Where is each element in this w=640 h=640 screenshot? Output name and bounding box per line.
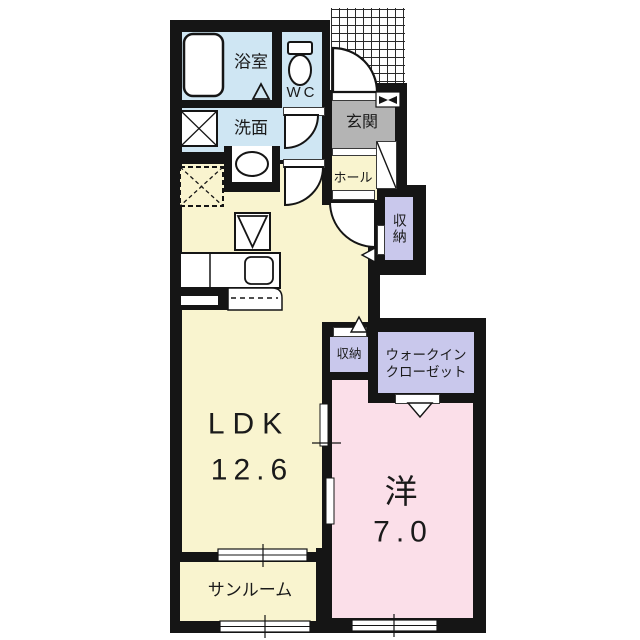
storage-opening-triangle-icon [351, 317, 367, 332]
vanity-sink-icon [236, 152, 268, 176]
bathtub-icon [184, 34, 223, 96]
shoe-cabinet-diagonal [377, 142, 396, 188]
toilet-tank-icon [288, 42, 312, 54]
label-entrance: 玄関 [346, 114, 378, 132]
wic-opening-triangle-icon [408, 403, 432, 417]
label-bathroom: 浴室 [234, 54, 268, 73]
label-hall: ホール [333, 171, 372, 185]
door-bowtie-icon [376, 92, 400, 107]
window-ldk-sunroom [218, 544, 307, 567]
label-wic-line2: クローゼット [386, 366, 467, 381]
window-sunroom-south [220, 615, 310, 638]
kitchen-counter-icon [180, 253, 280, 288]
sliding-door-ldk-western [312, 404, 341, 524]
label-wc: WC [287, 85, 318, 102]
label-washroom: 洗面 [234, 120, 268, 139]
refrigerator-space-icon [180, 167, 223, 206]
hall-door-triangle-icon [362, 248, 375, 262]
kitchen-bar-counter-icon [228, 288, 282, 310]
label-ldk-name: LDK [208, 408, 290, 441]
wc-door-arc [285, 115, 318, 148]
label-storage-upper: 収納 [391, 213, 406, 245]
label-sunroom: サンルーム [208, 582, 293, 601]
label-storage-lower: 収納 [336, 348, 361, 362]
washing-machine-pan-icon [181, 111, 217, 146]
toilet-bowl-icon [289, 55, 311, 85]
label-ldk-size: 12.6 [211, 454, 293, 487]
floor-plan: 浴室 WC 洗面 玄関 ホール 収納 収納 ウォークイン クローゼット LDK … [0, 0, 640, 640]
label-western-size: 7.0 [373, 516, 433, 549]
window-western-south [352, 614, 437, 637]
washroom-door-arc [285, 167, 323, 205]
fixtures-layer [0, 0, 640, 640]
label-western-name: 洋 [385, 474, 418, 510]
label-wic-line1: ウォークイン [386, 349, 467, 364]
entrance-door-arc [333, 48, 377, 92]
kitchen-stub-slot [181, 296, 218, 305]
bath-door-triangle-icon [253, 84, 269, 99]
kitchen-stove-icon [235, 213, 270, 250]
hall-door-arc [330, 202, 375, 247]
